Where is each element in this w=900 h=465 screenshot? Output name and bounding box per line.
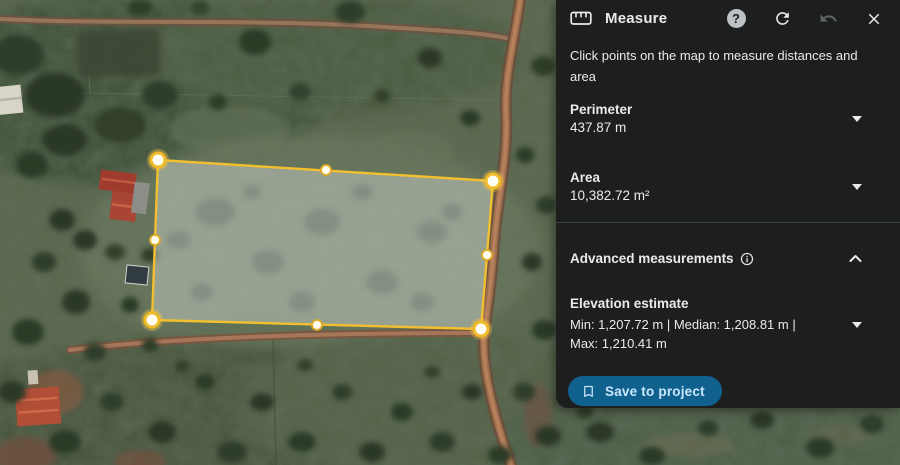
help-icon: ? [727, 9, 746, 28]
advanced-measurements-row[interactable]: Advanced measurements [556, 251, 900, 266]
restart-button[interactable] [768, 6, 796, 32]
panel-title: Measure [605, 10, 704, 27]
measure-panel: Measure ? Click points on the map to m [556, 0, 900, 408]
dark-shed [125, 265, 149, 285]
vertex-handle[interactable] [474, 322, 488, 336]
parcel-layer [141, 149, 504, 340]
save-to-project-button[interactable]: Save to project [568, 376, 722, 406]
vertex-handle[interactable] [151, 153, 165, 167]
info-icon [740, 252, 754, 266]
edge-midpoint-handle[interactable] [482, 250, 492, 260]
perimeter-label: Perimeter [570, 101, 632, 119]
undo-icon [819, 9, 838, 28]
area-value: 10,382.72 m² [570, 187, 650, 204]
chevron-down-icon[interactable] [852, 184, 862, 190]
advanced-measurements-label: Advanced measurements [570, 251, 734, 266]
close-button[interactable] [860, 6, 888, 32]
white-building [0, 85, 23, 116]
edge-midpoint-handle[interactable] [321, 165, 331, 175]
elevation-estimate-row[interactable]: Elevation estimate Min: 1,207.72 m | Med… [556, 296, 900, 353]
help-button[interactable]: ? [722, 6, 750, 32]
elevation-label: Elevation estimate [570, 296, 796, 311]
ruler-icon [570, 10, 592, 27]
save-button-label: Save to project [605, 384, 705, 399]
perimeter-value: 437.87 m [570, 119, 632, 136]
area-label: Area [570, 169, 650, 187]
section-divider [556, 222, 900, 223]
chevron-up-icon[interactable] [849, 254, 862, 263]
redo-icon [773, 9, 792, 28]
perimeter-row[interactable]: Perimeter 437.87 m [556, 101, 900, 136]
elevation-max: Max: 1,210.41 m [570, 334, 796, 353]
vertex-handle[interactable] [486, 174, 500, 188]
close-icon [865, 10, 883, 28]
undo-button[interactable] [814, 6, 842, 32]
edge-midpoint-handle[interactable] [150, 235, 160, 245]
measure-tool-screen: Measure ? Click points on the map to m [0, 0, 900, 465]
vertex-handle[interactable] [145, 313, 159, 327]
edge-midpoint-handle[interactable] [312, 320, 322, 330]
area-row[interactable]: Area 10,382.72 m² [556, 169, 900, 204]
measured-parcel-polygon[interactable] [152, 160, 493, 329]
chevron-down-icon[interactable] [852, 322, 862, 328]
chevron-down-icon[interactable] [852, 116, 862, 122]
bookmark-icon [581, 384, 596, 399]
measure-panel-header: Measure ? [556, 0, 900, 30]
instruction-text: Click points on the map to measure dista… [570, 45, 884, 87]
elevation-min-median: Min: 1,207.72 m | Median: 1,208.81 m | [570, 315, 796, 334]
